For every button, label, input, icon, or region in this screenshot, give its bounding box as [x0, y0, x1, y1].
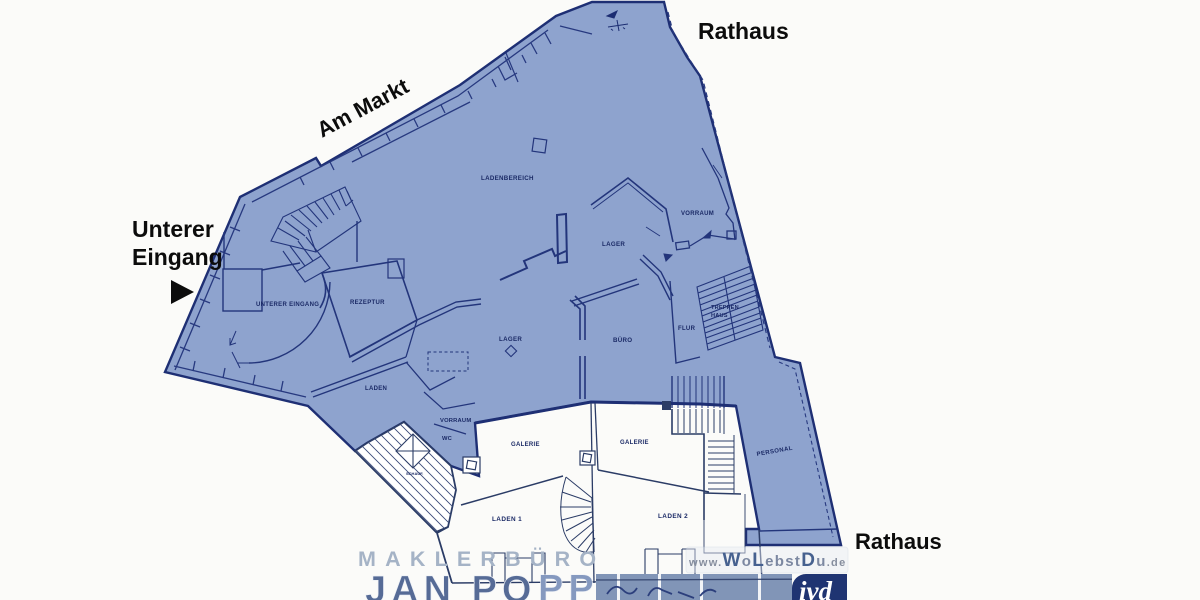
svg-text:JAN PO: JAN PO: [365, 569, 536, 600]
svg-text:LAGER: LAGER: [602, 241, 625, 248]
svg-text:UNTERER EINGANG: UNTERER EINGANG: [256, 302, 319, 308]
svg-text:Rathaus: Rathaus: [698, 18, 789, 44]
svg-text:REZEPTUR: REZEPTUR: [350, 300, 385, 306]
svg-text:LADEN: LADEN: [365, 386, 387, 392]
svg-text:SCHAUF.: SCHAUF.: [406, 471, 423, 476]
svg-text:WC: WC: [442, 436, 453, 442]
svg-text:Eingang: Eingang: [132, 244, 223, 270]
svg-text:LADEN 2: LADEN 2: [658, 513, 688, 520]
svg-text:ivd: ivd: [799, 576, 832, 600]
svg-text:BÜRO: BÜRO: [613, 337, 632, 344]
svg-text:Unterer: Unterer: [132, 216, 214, 242]
svg-text:PP: PP: [538, 568, 599, 600]
svg-text:HAUS: HAUS: [711, 313, 728, 319]
svg-text:VORRAUM: VORRAUM: [681, 211, 714, 217]
svg-text:LADEN 1: LADEN 1: [492, 516, 522, 523]
svg-text:LAGER: LAGER: [499, 336, 522, 343]
svg-text:Rathaus: Rathaus: [855, 529, 942, 554]
svg-text:LADENBEREICH: LADENBEREICH: [481, 175, 534, 182]
svg-text:VORRAUM: VORRAUM: [440, 418, 471, 424]
svg-text:FLUR: FLUR: [678, 326, 696, 332]
svg-text:TREPPEN: TREPPEN: [711, 305, 739, 311]
svg-text:GALERIE: GALERIE: [511, 442, 540, 448]
svg-text:GALERIE: GALERIE: [620, 440, 649, 446]
